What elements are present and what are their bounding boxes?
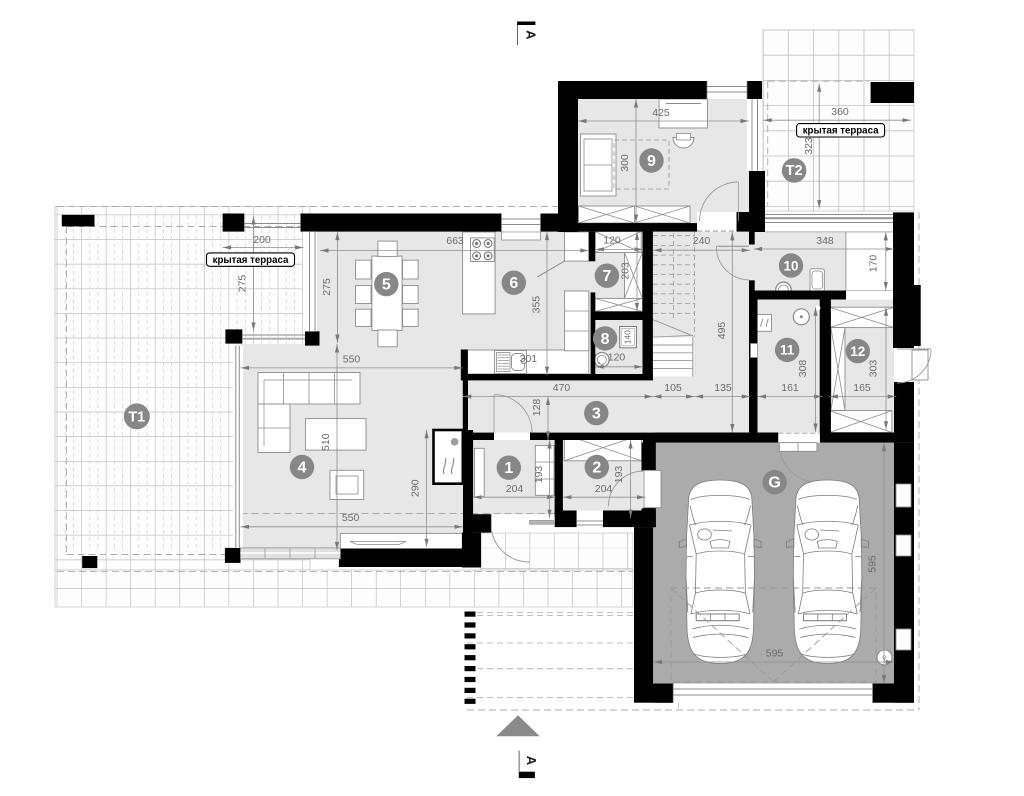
svg-text:425: 425 (652, 107, 670, 119)
svg-text:200: 200 (253, 234, 271, 246)
svg-text:5: 5 (382, 277, 391, 294)
svg-text:120: 120 (608, 352, 626, 364)
svg-text:663: 663 (446, 235, 464, 247)
svg-text:T2: T2 (786, 163, 803, 179)
svg-text:6: 6 (509, 275, 518, 292)
svg-text:193: 193 (613, 466, 625, 484)
svg-text:303: 303 (868, 360, 880, 378)
svg-text:1: 1 (504, 460, 513, 477)
svg-text:203: 203 (620, 262, 632, 280)
svg-text:10: 10 (783, 258, 798, 273)
svg-text:7: 7 (602, 268, 611, 285)
svg-text:9: 9 (647, 153, 656, 170)
svg-text:120: 120 (603, 235, 621, 247)
svg-text:275: 275 (321, 278, 333, 296)
svg-text:240: 240 (693, 235, 711, 247)
svg-text:595: 595 (766, 648, 784, 660)
svg-text:128: 128 (531, 399, 543, 417)
svg-text:308: 308 (797, 360, 809, 378)
svg-text:550: 550 (342, 512, 360, 524)
svg-text:3: 3 (592, 406, 601, 423)
svg-text:204: 204 (506, 483, 524, 495)
svg-text:12: 12 (850, 344, 865, 359)
svg-text:348: 348 (816, 235, 834, 247)
svg-text:510: 510 (320, 433, 332, 451)
svg-text:165: 165 (853, 382, 871, 394)
svg-text:крытая терраса: крытая терраса (803, 126, 879, 137)
svg-text:355: 355 (530, 296, 542, 314)
svg-text:крытая терраса: крытая терраса (213, 255, 289, 266)
svg-text:300: 300 (619, 154, 631, 172)
svg-text:2: 2 (592, 460, 601, 477)
svg-text:470: 470 (553, 382, 571, 394)
svg-text:275: 275 (237, 275, 249, 293)
svg-text:4: 4 (298, 460, 307, 477)
svg-text:G: G (768, 475, 780, 492)
svg-text:595: 595 (867, 555, 879, 573)
svg-text:135: 135 (714, 382, 732, 394)
svg-text:T1: T1 (128, 409, 145, 425)
svg-text:11: 11 (780, 343, 795, 358)
svg-text:550: 550 (343, 354, 361, 366)
svg-text:495: 495 (716, 322, 728, 340)
svg-text:105: 105 (664, 382, 682, 394)
svg-text:140: 140 (623, 330, 633, 344)
svg-text:8: 8 (601, 331, 610, 348)
svg-text:170: 170 (868, 255, 880, 273)
svg-text:323: 323 (803, 137, 815, 155)
svg-text:161: 161 (781, 382, 799, 394)
svg-text:204: 204 (595, 483, 613, 495)
svg-text:A: A (524, 756, 539, 766)
svg-text:193: 193 (533, 466, 545, 484)
svg-text:290: 290 (410, 479, 422, 497)
svg-text:360: 360 (831, 106, 849, 118)
svg-text:A: A (524, 30, 539, 40)
svg-text:301: 301 (520, 353, 538, 365)
